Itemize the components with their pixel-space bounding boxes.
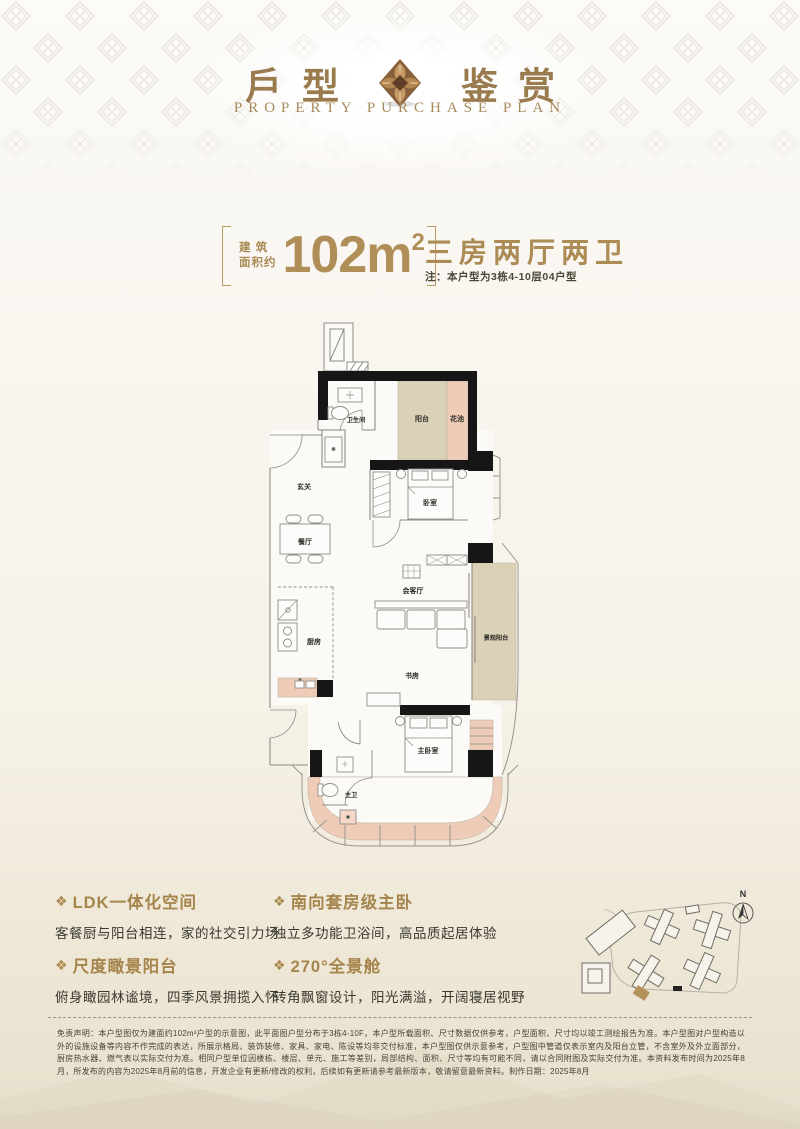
dashed-divider bbox=[48, 1017, 752, 1018]
feature-desc: 客餐厨与阳台相连，家的社交引力场 bbox=[55, 922, 295, 942]
room-label-living: 会客厅 bbox=[403, 586, 424, 595]
background-texture bbox=[0, 1029, 800, 1129]
room-label-kitchen: 厨房 bbox=[307, 637, 321, 646]
compass-icon: N bbox=[733, 889, 753, 923]
room-label-bathroom: 卫生间 bbox=[347, 416, 366, 424]
layout-type-title: 三房两厅两卫 bbox=[425, 231, 629, 271]
diamond-icon: ❖ bbox=[273, 957, 287, 974]
area-value: 102m bbox=[283, 226, 412, 286]
room-label-dining: 餐厅 bbox=[297, 537, 312, 546]
floor-plan-svg: 卫生间 阳台 花池 玄关 卧室 餐厅 会客厅 厨房 书房 景观阳台 主卧室 主卫 bbox=[250, 318, 530, 863]
room-label-master-bedroom: 主卧室 bbox=[418, 746, 439, 755]
layout-type-note: 注：本户型为3栋4-10层04户型 bbox=[425, 269, 577, 284]
site-plan-svg: N bbox=[580, 885, 770, 1025]
page-subtitle: PROPERTY PURCHASE PLAN bbox=[0, 100, 800, 117]
feature-ldk: ❖LDK一体化空间 客餐厨与阳台相连，家的社交引力场 bbox=[55, 889, 295, 942]
feature-title: 南向套房级主卧 bbox=[291, 889, 414, 913]
feature-desc: 俯身瞰园林谧境，四季风景拥揽入怀 bbox=[55, 986, 295, 1006]
north-label: N bbox=[740, 889, 747, 899]
diamond-icon: ❖ bbox=[55, 893, 69, 910]
feature-master-suite: ❖南向套房级主卧 独立多功能卫浴间，高品质起居体验 bbox=[273, 889, 513, 942]
area-prefix-line2: 面积约 bbox=[239, 256, 277, 271]
room-label-balcony: 阳台 bbox=[415, 414, 429, 423]
area-prefix-line1: 建 筑 bbox=[239, 241, 277, 256]
room-label-flower-bed: 花池 bbox=[450, 414, 464, 423]
room-label-master-bath: 主卫 bbox=[345, 791, 358, 799]
room-label-view-balcony: 景观阳台 bbox=[483, 634, 509, 642]
plan-shaft bbox=[324, 323, 368, 371]
room-label-foyer: 玄关 bbox=[297, 482, 311, 491]
feature-desc: 独立多功能卫浴间，高品质起居体验 bbox=[273, 922, 513, 942]
site-buildings bbox=[582, 905, 735, 998]
diamond-icon: ❖ bbox=[273, 893, 287, 910]
area-spec: 建 筑 面积约 102m 2 bbox=[222, 226, 436, 286]
area-prefix-label: 建 筑 面积约 bbox=[239, 226, 277, 286]
feature-title: 尺度瞰景阳台 bbox=[73, 953, 178, 977]
feature-desc: 转角飘窗设计，阳光满溢，开阔寝居视野 bbox=[273, 986, 513, 1006]
area-superscript: 2 bbox=[412, 228, 425, 258]
room-label-bedroom: 卧室 bbox=[423, 498, 437, 507]
diamond-icon: ❖ bbox=[55, 957, 69, 974]
room-label-study: 书房 bbox=[405, 671, 419, 680]
poster-page: { "header": { "title_left": "戶型", "title… bbox=[0, 0, 800, 1129]
feature-panorama: ❖270°全景舱 转角飘窗设计，阳光满溢，开阔寝居视野 bbox=[273, 953, 513, 1006]
area-bracket-left bbox=[222, 226, 231, 286]
feature-title: 270°全景舱 bbox=[291, 953, 382, 977]
feature-title: LDK一体化空间 bbox=[73, 889, 197, 913]
site-marker bbox=[673, 986, 682, 991]
feature-view-balcony: ❖尺度瞰景阳台 俯身瞰园林谧境，四季风景拥揽入怀 bbox=[55, 953, 295, 1006]
